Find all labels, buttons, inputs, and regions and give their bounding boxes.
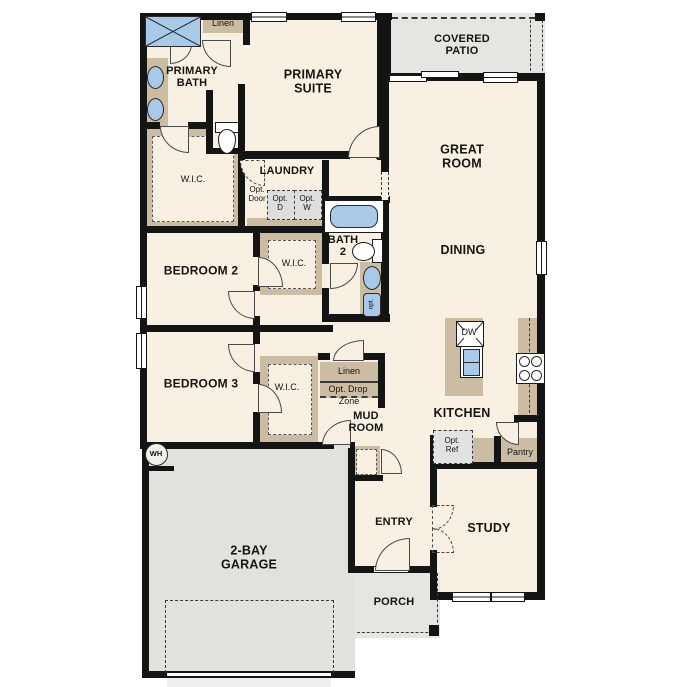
linen-mid-label: Linen — [338, 367, 360, 377]
window-bedroom2 — [136, 286, 147, 319]
mud-counter — [470, 438, 496, 462]
wall-garage-top-a — [142, 442, 334, 449]
patio-slider-panel-b — [421, 71, 459, 78]
pantry-label: Pantry — [507, 448, 533, 458]
window-dining-right — [536, 241, 547, 275]
wall-suite-west — [238, 84, 245, 158]
linen-top-label: Linen — [212, 19, 234, 29]
wall-bedroom2-north — [140, 226, 330, 233]
wall-bedroom3-east-b — [253, 372, 260, 384]
sink-icon-bath2 — [363, 266, 381, 290]
primary-wic-label: W.I.C. — [181, 175, 206, 185]
wall-bedroom3-east-a — [253, 332, 260, 344]
water-heater-label: WH — [150, 450, 163, 458]
bedroom3-label: BEDROOM 3 — [164, 377, 238, 390]
kitchen-sink-basin-1 — [463, 349, 480, 363]
covered-patio-label: COVERED PATIO — [434, 33, 490, 57]
wall-bedroom3-east-c — [253, 412, 260, 442]
opt-door-label: Opt. Door — [248, 186, 265, 204]
wic2-label: W.I.C. — [282, 259, 307, 269]
wall-garage-left — [142, 442, 149, 678]
porch-corner-post — [429, 625, 439, 636]
stove-icon — [516, 353, 545, 384]
zone-label: Zone — [339, 397, 360, 407]
laundry-label: LAUNDRY — [260, 165, 315, 177]
garage-label: 2-BAY GARAGE — [221, 544, 277, 572]
wall-kitchen-south — [514, 415, 545, 422]
primary-suite-label: PRIMARY SUITE — [284, 68, 343, 96]
shower-icon — [145, 16, 201, 47]
wall-pantry-left — [494, 436, 501, 462]
wall-porch-a — [355, 566, 374, 573]
bedroom2-label: BEDROOM 2 — [164, 264, 238, 277]
entry-label: ENTRY — [375, 516, 413, 528]
primary-bath-label: PRIMARY BATH — [166, 65, 218, 89]
wall-linen-right-top — [243, 13, 250, 45]
kitchen-label: KITCHEN — [434, 407, 491, 421]
great-room-label: GREAT ROOM — [440, 143, 484, 171]
floor-plan: Linen PRIMARY BATH PRIMARY SUITE COVERED… — [0, 0, 687, 687]
opt-drop-label: Opt. Drop — [328, 385, 367, 395]
window-bedroom3 — [136, 333, 147, 369]
wall-bath-wic-b — [188, 122, 210, 129]
opt-ref-label: Opt. Ref — [444, 437, 459, 455]
patio-dashed-column — [530, 20, 543, 71]
study-label: STUDY — [467, 522, 510, 536]
opt-w-label: Opt. W — [299, 195, 314, 213]
wic3-label: W.I.C. — [275, 383, 300, 393]
wall-garage-right — [348, 448, 355, 573]
wall-wh-stub — [142, 466, 174, 471]
opt-door-opening-dashed — [381, 172, 389, 200]
driveway-stub — [167, 678, 331, 687]
window-study-2 — [491, 592, 525, 602]
window-suite-2 — [341, 12, 376, 22]
opt-d-label: Opt. D — [272, 195, 287, 213]
garage-door-opening — [167, 672, 331, 677]
wall-bedroom-divider — [140, 325, 333, 332]
linen-divider-line — [320, 381, 378, 383]
wall-linen-stack-right — [378, 353, 385, 408]
patio-dashed-top — [392, 17, 535, 19]
garage-door-outline — [165, 600, 334, 673]
window-greatroom-top — [483, 72, 518, 83]
wall-bedroom2-east-a — [253, 233, 260, 257]
wall-mudcloset-bottom — [352, 475, 383, 481]
wall-bath-wic-a — [140, 122, 160, 129]
mud-closet-floor — [356, 449, 377, 475]
bathtub-icon — [330, 205, 378, 228]
dishwasher-label: DW — [462, 328, 477, 338]
wall-greatroom-west-a — [381, 80, 389, 172]
window-suite-1 — [251, 12, 287, 22]
kitchen-sink-basin-2 — [463, 362, 480, 376]
mud-room-label: MUD ROOM — [348, 410, 383, 434]
sink-icon-primary-1 — [147, 66, 164, 89]
opt-sink-label: opt. — [367, 299, 374, 310]
wall-suite-south-a — [245, 151, 350, 159]
wall-hall-mud-a — [318, 353, 330, 360]
porch-label: PORCH — [374, 596, 415, 608]
sink-icon-primary-2 — [147, 98, 164, 121]
bath2-label: BATH 2 — [328, 234, 359, 258]
window-study-1 — [452, 592, 491, 602]
dining-label: DINING — [441, 244, 486, 258]
wall-right — [537, 80, 545, 600]
